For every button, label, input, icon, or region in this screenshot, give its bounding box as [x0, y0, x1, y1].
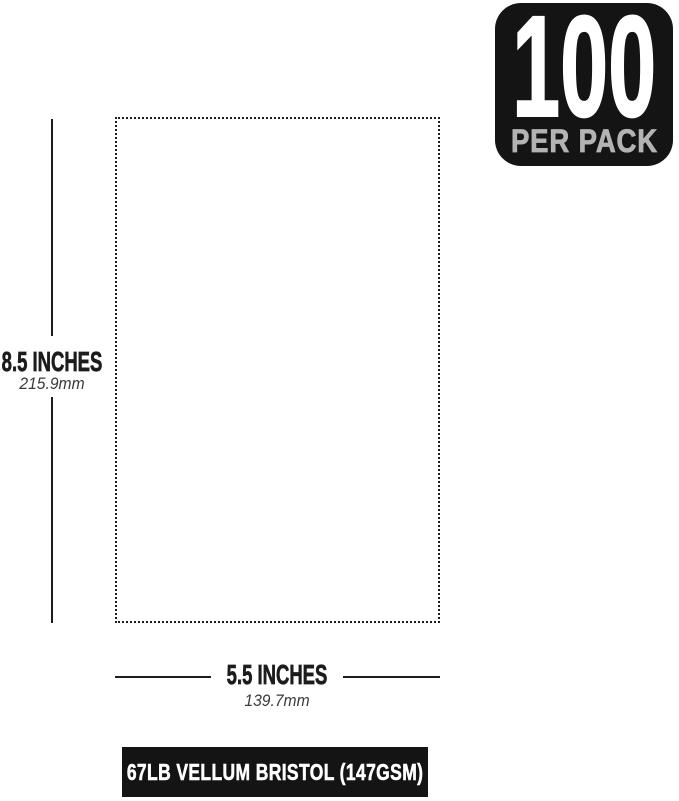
paper-spec-bar: 67LB VELLUM BRISTOL (147GSM): [122, 747, 428, 797]
paper-spec-label: 67LB VELLUM BRISTOL (147GSM): [127, 761, 424, 784]
height-mm-label: 215.9mm: [19, 375, 84, 392]
width-dimension-line-left: [115, 676, 211, 678]
per-pack-badge: 100 PER PACK: [495, 3, 673, 166]
width-inches-label: 5.5 INCHES: [227, 661, 328, 689]
product-infographic: 8.5 INCHES 215.9mm 5.5 INCHES 139.7mm 10…: [0, 0, 679, 801]
pack-count: 100: [512, 14, 656, 120]
per-pack-label: PER PACK: [510, 125, 657, 157]
height-inches-label: 8.5 INCHES: [2, 348, 103, 376]
height-dimension-line-lower: [51, 397, 53, 623]
height-dimension-line-upper: [51, 119, 53, 336]
paper-outline: [115, 117, 440, 623]
width-dimension-line-right: [343, 676, 440, 678]
width-mm-label: 139.7mm: [244, 692, 309, 709]
